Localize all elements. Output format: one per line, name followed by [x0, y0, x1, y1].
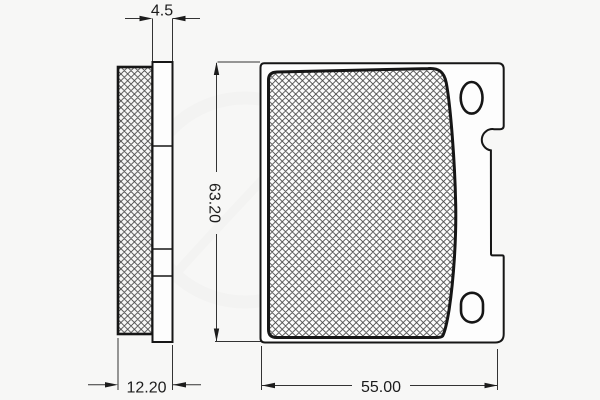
svg-text:12.20: 12.20 — [126, 379, 166, 396]
svg-text:63.20: 63.20 — [206, 183, 223, 223]
svg-text:55.00: 55.00 — [361, 379, 401, 396]
svg-text:4.5: 4.5 — [151, 3, 173, 20]
